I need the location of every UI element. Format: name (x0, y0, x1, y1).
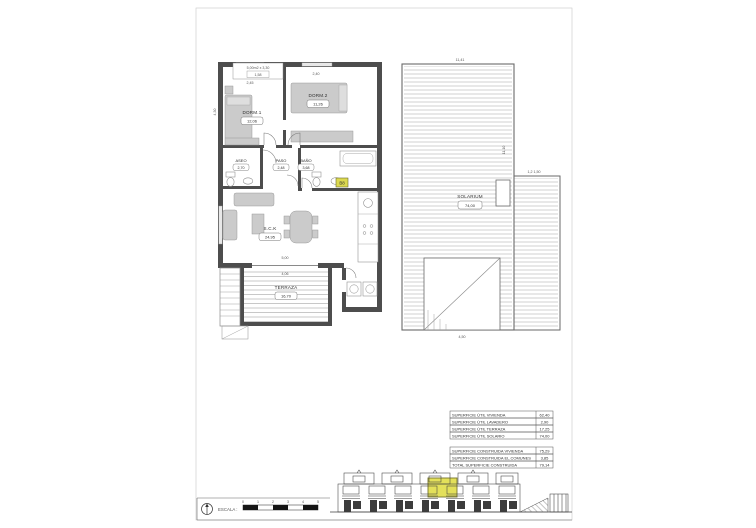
ramp (520, 498, 548, 512)
dim-dorm2-width: 2,40 (313, 72, 320, 76)
laundry-note: 5,00m2 x 3,30 1,58 (233, 63, 283, 79)
room-label-dorm1: DORM.1 12,06 (241, 110, 263, 125)
table-row: SUPERFICIE ÚTIL VIVIENDA 62,40 (452, 412, 550, 417)
svg-text:PASO: PASO (276, 158, 287, 163)
tv-unit (252, 214, 264, 234)
dim-left-height: 4,30 (213, 109, 217, 116)
svg-text:2,70: 2,70 (238, 166, 245, 170)
svg-text:0: 0 (242, 500, 244, 504)
room-label-bano: BAÑO 3,68 (298, 158, 314, 171)
svg-text:2,90: 2,90 (541, 419, 550, 424)
svg-text:3: 3 (287, 500, 289, 504)
dim-dorm1-width: 2,45 (247, 81, 254, 85)
scale-bar: 0 1 2 3 4 5 (242, 500, 319, 510)
table-row: SUPERFICIE ÚTIL LAVADERO 2,90 (452, 419, 549, 424)
room-label-solarium: SOLARIUM 74,00 (457, 194, 483, 209)
svg-text:4: 4 (302, 500, 304, 504)
svg-text:ASEO: ASEO (235, 158, 246, 163)
dim-solarium-stair: 4,50 (459, 335, 466, 339)
svg-text:SUPERFICIE CONSTRUIDA EL.COMUN: SUPERFICIE CONSTRUIDA EL.COMUNES (452, 455, 531, 460)
dryer (363, 282, 377, 296)
window-dorm2 (302, 63, 332, 66)
bed-dorm2 (291, 83, 347, 113)
svg-text:TOTAL SUPERFICIE CONSTRUIDA: TOTAL SUPERFICIE CONSTRUIDA (452, 462, 517, 467)
room-label-aseo: ASEO 2,70 (233, 158, 249, 171)
svg-text:3,68: 3,68 (303, 166, 310, 170)
pillow-dorm1 (227, 97, 250, 105)
room-label-paso: PASO 2,48 (273, 158, 289, 171)
svg-text:75,29: 75,29 (539, 448, 550, 453)
note-line1: 5,00m2 x 3,30 (247, 66, 270, 70)
svg-text:DORM.1: DORM.1 (242, 110, 261, 115)
wc-bano (313, 178, 320, 187)
washer (347, 282, 361, 296)
svg-text:SOLARIUM: SOLARIUM (457, 194, 483, 199)
table-row: SUPERFICIE ÚTIL SOLARIO 74,00 (452, 433, 550, 438)
plan-canvas: 5,00m2 x 3,30 1,58 DORM.1 12,06 DORM.2 1… (0, 0, 756, 528)
svg-text:17,25: 17,25 (539, 426, 550, 431)
wardrobe-dorm2 (291, 131, 353, 142)
svg-text:12,06: 12,06 (247, 119, 258, 124)
svg-text:79,14: 79,14 (539, 462, 550, 467)
svg-text:3,85: 3,85 (541, 455, 550, 460)
table-row: TOTAL SUPERFICIE CONSTRUIDA 79,14 (452, 462, 550, 467)
dim-solarium-right: 11,10 (502, 146, 506, 155)
svg-text:SUPERFICIE ÚTIL LAVADERO: SUPERFICIE ÚTIL LAVADERO (452, 419, 508, 424)
area-table-construida: SUPERFICIE CONSTRUIDA VIVIENDA 75,29 SUP… (450, 447, 553, 468)
dining-table (290, 211, 312, 243)
svg-text:2,48: 2,48 (278, 166, 285, 170)
svg-text:B8: B8 (339, 181, 345, 186)
svg-text:BAÑO: BAÑO (300, 158, 311, 163)
drawing-sheet: 5,00m2 x 3,30 1,58 DORM.1 12,06 DORM.2 1… (0, 0, 756, 528)
dim-terrace-in: 4,06 (282, 272, 289, 276)
svg-text:SUPERFICIE ÚTIL VIVIENDA: SUPERFICIE ÚTIL VIVIENDA (452, 412, 506, 417)
svg-text:S.C.K: S.C.K (264, 226, 278, 231)
scale-label: ESCALA : (218, 507, 238, 512)
floor-plan: 5,00m2 x 3,30 1,58 DORM.1 12,06 DORM.2 1… (213, 62, 382, 339)
svg-text:74,00: 74,00 (465, 203, 476, 208)
table-row: SUPERFICIE CONSTRUIDA EL.COMUNES 3,85 (452, 455, 549, 460)
nightstand-dorm1 (225, 86, 233, 94)
svg-text:24,95: 24,95 (265, 235, 276, 240)
note-line2: 1,58 (255, 73, 262, 77)
dim-solarium-top: 11,41 (456, 58, 465, 62)
svg-text:SUPERFICIE ÚTIL TERRAZA: SUPERFICIE ÚTIL TERRAZA (452, 426, 506, 431)
sofa-top (234, 193, 274, 206)
north-arrow-icon (202, 504, 213, 515)
pillow-dorm2 (339, 85, 347, 111)
svg-text:11,26: 11,26 (313, 102, 323, 107)
shaft (496, 180, 510, 206)
svg-text:62,40: 62,40 (539, 412, 550, 417)
svg-text:SUPERFICIE ÚTIL SOLARIO: SUPERFICIE ÚTIL SOLARIO (452, 433, 505, 438)
wc-aseo (227, 178, 234, 187)
dim-solarium-step: 1,2 1,50 (528, 170, 541, 174)
svg-text:TERRAZA: TERRAZA (275, 285, 299, 290)
wardrobe-dorm1 (225, 138, 259, 145)
elevation-drawing (330, 470, 572, 512)
svg-text:SUPERFICIE CONSTRUIDA VIVIENDA: SUPERFICIE CONSTRUIDA VIVIENDA (452, 448, 523, 453)
table-row: SUPERFICIE CONSTRUIDA VIVIENDA 75,29 (452, 448, 550, 453)
kitchen-counter (358, 192, 378, 262)
area-table-util: SUPERFICIE ÚTIL VIVIENDA 62,40 SUPERFICI… (450, 411, 553, 439)
side-structure (550, 494, 568, 512)
solarium-plan: SOLARIUM 74,00 11,41 1,2 1,50 11,10 4,50 (402, 58, 560, 339)
sink-aseo (243, 178, 253, 184)
dim-terrace-out: 5,00 (282, 256, 289, 260)
window-living (219, 206, 222, 244)
unit-badge: B8 (336, 178, 348, 187)
svg-text:16,70: 16,70 (281, 294, 292, 299)
sofa-left (223, 210, 237, 240)
svg-text:2: 2 (272, 500, 274, 504)
table-row: SUPERFICIE ÚTIL TERRAZA 17,25 (452, 426, 550, 431)
svg-text:5: 5 (317, 500, 319, 504)
room-label-terraza: TERRAZA 16,70 (275, 285, 299, 300)
svg-text:1: 1 (257, 500, 259, 504)
svg-text:DORM.2: DORM.2 (308, 93, 327, 98)
room-label-dorm2: DORM.2 11,26 (307, 93, 329, 108)
svg-text:74,00: 74,00 (539, 433, 550, 438)
solarium-stair-void (424, 258, 500, 330)
